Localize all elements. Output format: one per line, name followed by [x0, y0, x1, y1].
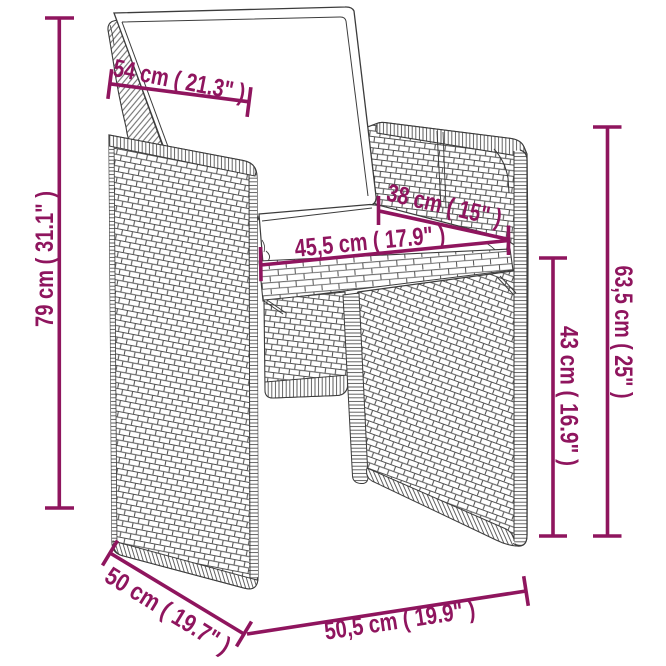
svg-text:79 cm ( 31.1" ): 79 cm ( 31.1" ) [31, 191, 59, 327]
svg-text:63,5 cm ( 25" ): 63,5 cm ( 25" ) [609, 266, 637, 399]
svg-text:43 cm ( 16.9" ): 43 cm ( 16.9" ) [554, 326, 582, 466]
